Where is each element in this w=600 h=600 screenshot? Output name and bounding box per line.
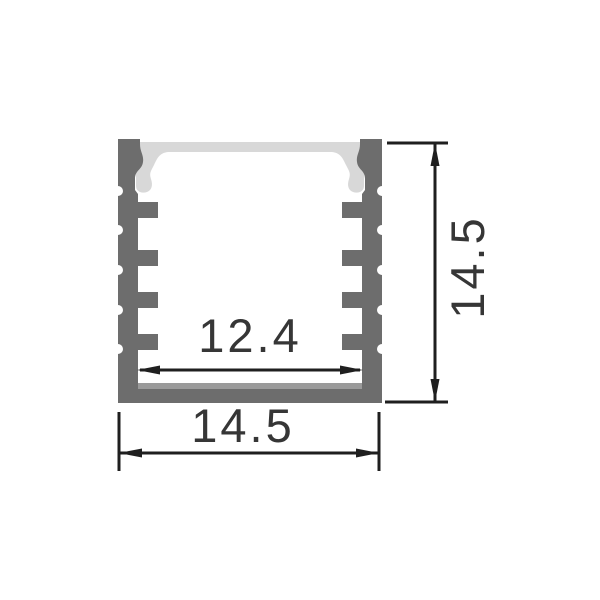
- notch-icon: [377, 265, 387, 275]
- drawing-background: [0, 0, 600, 600]
- notch-icon: [377, 186, 387, 196]
- notch-icon: [377, 344, 387, 354]
- diffuser-top-plate: [136, 142, 364, 152]
- notch-icon: [377, 225, 387, 235]
- notch-icon: [113, 305, 123, 315]
- drawing-canvas: 12.4 14.5 14.5: [0, 0, 600, 600]
- notch-icon: [113, 265, 123, 275]
- notch-icon: [113, 186, 123, 196]
- notch-icon: [113, 344, 123, 354]
- led-profile-cross-section-drawing: 12.4 14.5 14.5: [0, 0, 600, 600]
- notch-icon: [113, 225, 123, 235]
- inner-width-label: 12.4: [198, 309, 301, 362]
- floor-highlight-strip: [138, 383, 362, 389]
- outer-width-label: 14.5: [191, 399, 294, 452]
- notch-icon: [377, 305, 387, 315]
- height-label: 14.5: [441, 215, 494, 318]
